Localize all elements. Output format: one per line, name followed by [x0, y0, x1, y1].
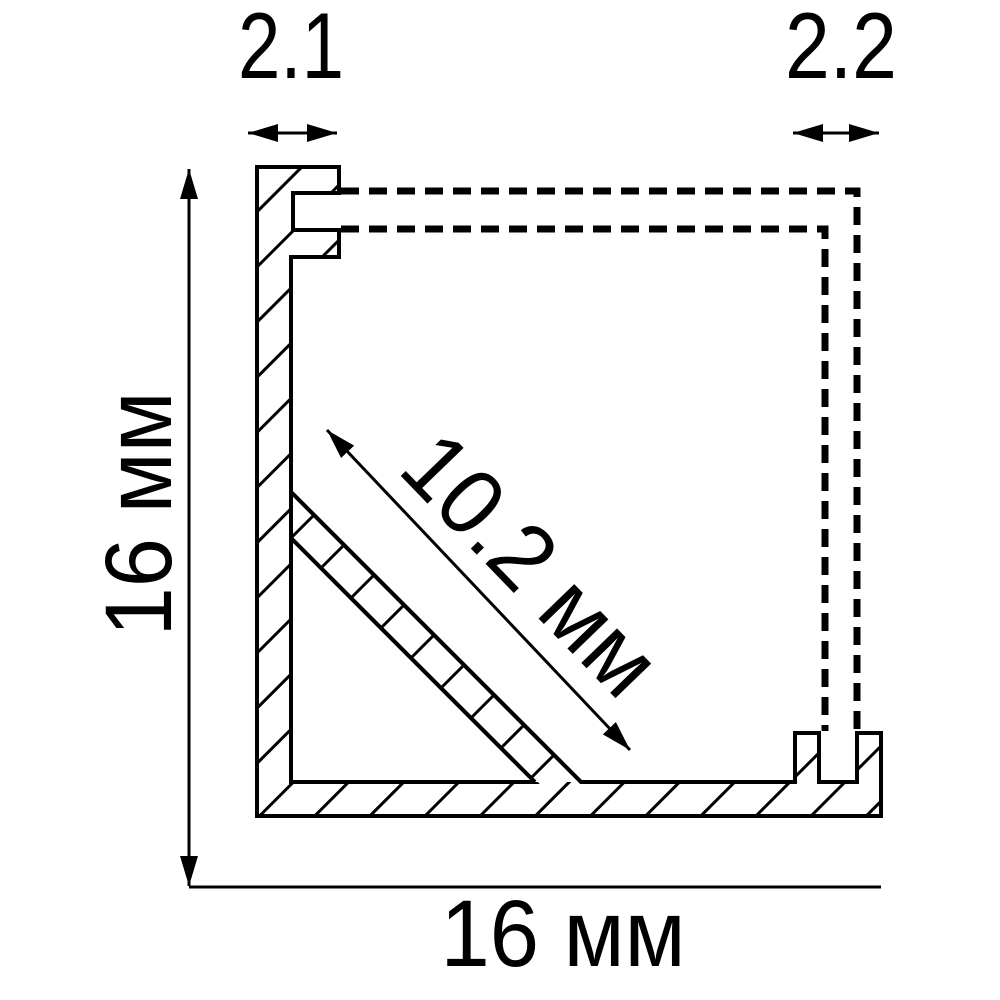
dim-label-top-right: 2.2 [785, 0, 897, 98]
dim-label-left-height: 16 мм [86, 392, 192, 637]
profile-body-hatched [257, 167, 881, 816]
technical-drawing-canvas: 2.1 2.2 16 мм 16 мм 10.2 мм [0, 0, 1000, 1000]
dim-label-top-left: 2.1 [238, 0, 344, 98]
dim-label-bottom-width: 16 мм [441, 881, 686, 987]
profile-cross-section-drawing: 2.1 2.2 16 мм 16 мм 10.2 мм [0, 0, 1000, 1000]
